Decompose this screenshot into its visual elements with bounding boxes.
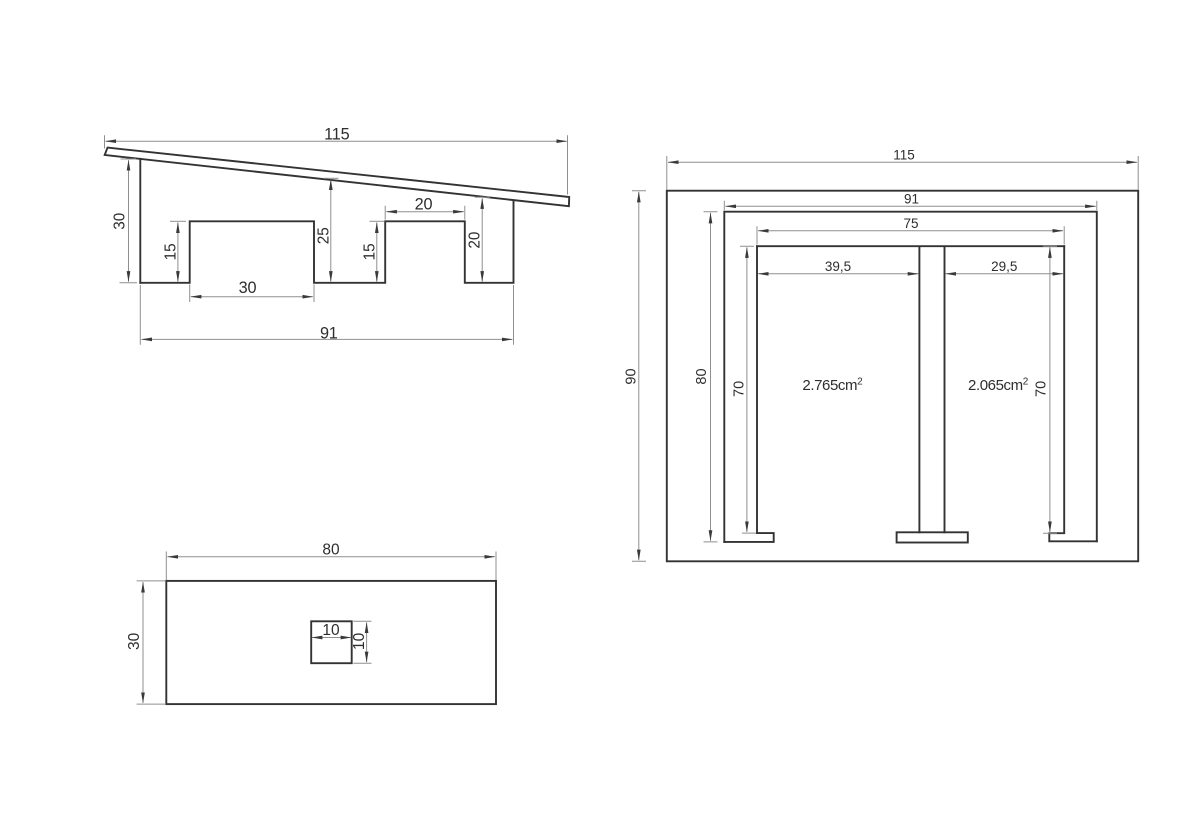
svg-text:80: 80 xyxy=(694,368,710,384)
svg-text:70: 70 xyxy=(731,381,747,397)
svg-text:30: 30 xyxy=(126,632,143,650)
svg-text:70: 70 xyxy=(1034,381,1050,397)
svg-text:39,5: 39,5 xyxy=(825,259,851,274)
svg-text:25: 25 xyxy=(315,227,332,244)
svg-text:15: 15 xyxy=(163,243,180,260)
svg-text:29,5: 29,5 xyxy=(991,259,1017,274)
svg-text:90: 90 xyxy=(624,368,640,384)
svg-text:80: 80 xyxy=(322,541,340,558)
svg-text:115: 115 xyxy=(893,147,915,162)
svg-text:30: 30 xyxy=(112,213,129,230)
svg-text:75: 75 xyxy=(903,216,918,231)
svg-text:30: 30 xyxy=(239,279,257,297)
svg-text:2.765cm2: 2.765cm2 xyxy=(802,377,863,395)
svg-text:20: 20 xyxy=(415,195,433,213)
svg-text:15: 15 xyxy=(361,243,378,260)
svg-text:91: 91 xyxy=(904,192,919,207)
svg-text:20: 20 xyxy=(467,232,484,249)
svg-text:10: 10 xyxy=(322,622,340,639)
svg-text:91: 91 xyxy=(320,325,338,343)
svg-text:2.065cm2: 2.065cm2 xyxy=(968,377,1029,395)
svg-text:10: 10 xyxy=(351,632,368,650)
svg-text:115: 115 xyxy=(324,126,350,144)
